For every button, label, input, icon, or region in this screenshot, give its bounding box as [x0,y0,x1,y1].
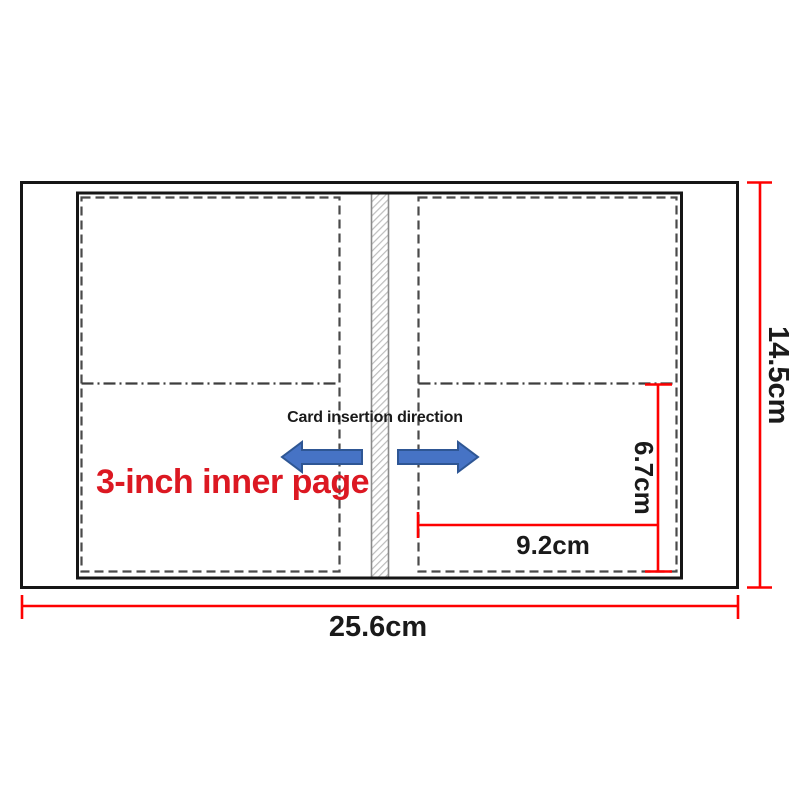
pocket-depth-dimension-label: 6.7cm [628,441,659,515]
right-arrow-icon [398,442,478,472]
card-insertion-direction-label: Card insertion direction [265,409,485,427]
diagram-linework [0,0,800,800]
pocket-width-dimension-label: 9.2cm [503,530,603,561]
album-inner-page-diagram: Card insertion direction 3-inch inner pa… [0,0,800,800]
overall-width-dimension-label: 25.6cm [328,611,428,644]
page-type-label: 3-inch inner page [96,463,369,502]
spine-hatch-area [372,195,389,577]
overall-height-dimension-label: 14.5cm [761,326,794,424]
